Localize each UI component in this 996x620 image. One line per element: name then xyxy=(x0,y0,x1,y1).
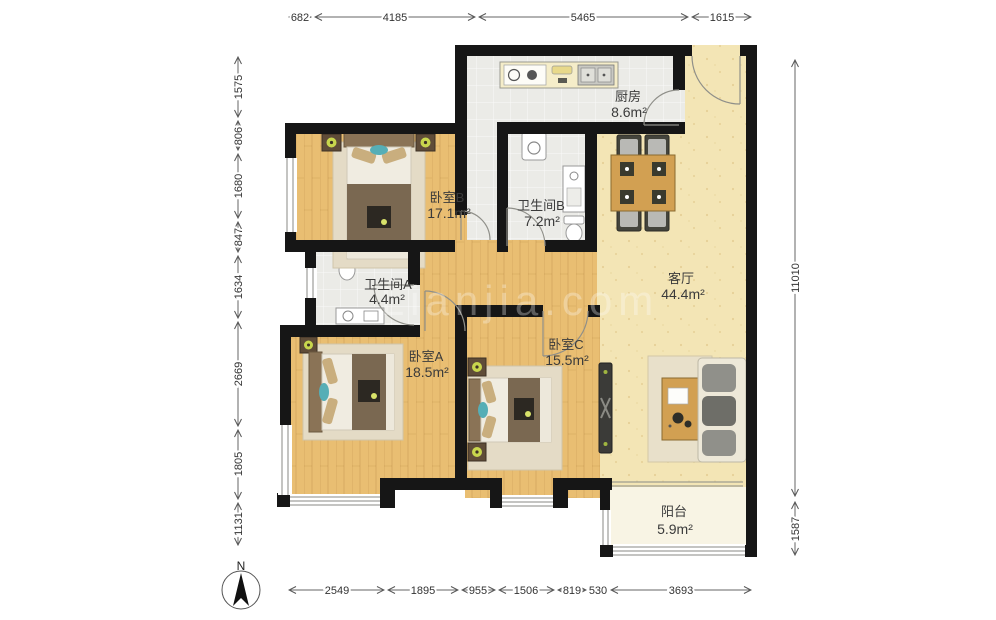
bed-c-icon xyxy=(468,358,562,470)
label-kitchen: 厨房 xyxy=(615,89,641,104)
window-balcony-left xyxy=(600,510,611,545)
area-bathroom-b: 7.2m² xyxy=(524,213,560,229)
room-corridor xyxy=(467,129,497,252)
dimension-right: 11010 1587 xyxy=(790,60,802,555)
dim-left-5: 2669 xyxy=(233,362,245,386)
dim-bottom-5: 530 xyxy=(589,585,607,597)
room-balcony xyxy=(603,487,753,553)
label-living-room: 客厅 xyxy=(668,271,694,286)
dim-top-0: 682 xyxy=(291,12,309,24)
dim-left-2: 1680 xyxy=(233,174,245,198)
dim-bottom-3: 1506 xyxy=(514,585,538,597)
watermark: Lianjia.com xyxy=(381,277,659,324)
north-compass: N xyxy=(222,559,260,609)
area-bedroom-b: 17.1m² xyxy=(427,205,471,221)
bed-a-icon xyxy=(300,337,403,440)
label-bathroom-b: 卫生间B xyxy=(517,198,565,213)
dimension-bottom: 2549 1895 955 1506 819 530 3693 xyxy=(289,585,751,597)
window-bedroom-c-bottom xyxy=(502,495,553,508)
dim-right-0: 11010 xyxy=(790,263,802,293)
label-balcony: 阳台 xyxy=(661,504,687,519)
north-needle-icon xyxy=(233,573,249,606)
area-living-room: 44.4m² xyxy=(661,286,705,302)
dim-top-1: 4185 xyxy=(383,12,407,24)
dim-bottom-4: 819 xyxy=(563,585,581,597)
sink-icon xyxy=(336,308,384,324)
dim-bottom-0: 2549 xyxy=(325,585,349,597)
label-bedroom-b: 卧室B xyxy=(430,190,465,205)
label-bedroom-c: 卧室C xyxy=(548,337,583,352)
toilet-icon xyxy=(564,216,584,242)
dim-bottom-2: 955 xyxy=(469,585,487,597)
dim-left-0: 1575 xyxy=(233,75,245,99)
washing-machine-icon xyxy=(522,132,546,160)
tv-stand-icon xyxy=(599,363,612,453)
label-bedroom-a: 卧室A xyxy=(409,349,444,364)
window-balcony-bottom xyxy=(613,544,745,557)
window-bedroom-b-left xyxy=(283,158,297,232)
window-bedroom-a-left xyxy=(278,425,292,495)
dim-left-1: 806 xyxy=(233,127,245,145)
label-bathroom-a: 卫生间A xyxy=(364,277,412,292)
area-kitchen: 8.6m² xyxy=(611,104,647,120)
dim-top-2: 5465 xyxy=(571,12,595,24)
dim-left-4: 1634 xyxy=(233,275,245,299)
area-bedroom-c: 15.5m² xyxy=(545,352,589,368)
dim-right-1: 1587 xyxy=(790,517,802,541)
dim-top-3: 1615 xyxy=(710,12,734,24)
area-balcony: 5.9m² xyxy=(657,521,693,537)
area-bathroom-a: 4.4m² xyxy=(369,291,405,307)
kitchen-counter-icon xyxy=(500,62,618,88)
dim-bottom-6: 3693 xyxy=(669,585,693,597)
dim-left-3: 847 xyxy=(233,228,245,246)
dimension-top: 682 4185 5465 1615 xyxy=(289,12,751,24)
dim-bottom-1: 1895 xyxy=(411,585,435,597)
window-bathroom-a-left xyxy=(303,268,317,298)
dimension-left: 1575 806 1680 847 1634 2669 1805 1131 xyxy=(233,57,245,545)
area-bedroom-a: 18.5m² xyxy=(405,364,449,380)
window-bedroom-a-bottom xyxy=(290,494,380,507)
dim-left-6: 1805 xyxy=(233,452,245,476)
shower-icon xyxy=(563,166,585,212)
floor-plan-page: Lianjia.com 厨房 8.6m² 卧室B 17.1m² 卫生间B 7.2… xyxy=(0,0,996,620)
floor-plan-canvas: Lianjia.com 厨房 8.6m² 卧室B 17.1m² 卫生间B 7.2… xyxy=(0,0,996,620)
dim-left-7: 1131 xyxy=(233,512,245,536)
sofa-icon xyxy=(698,358,746,462)
